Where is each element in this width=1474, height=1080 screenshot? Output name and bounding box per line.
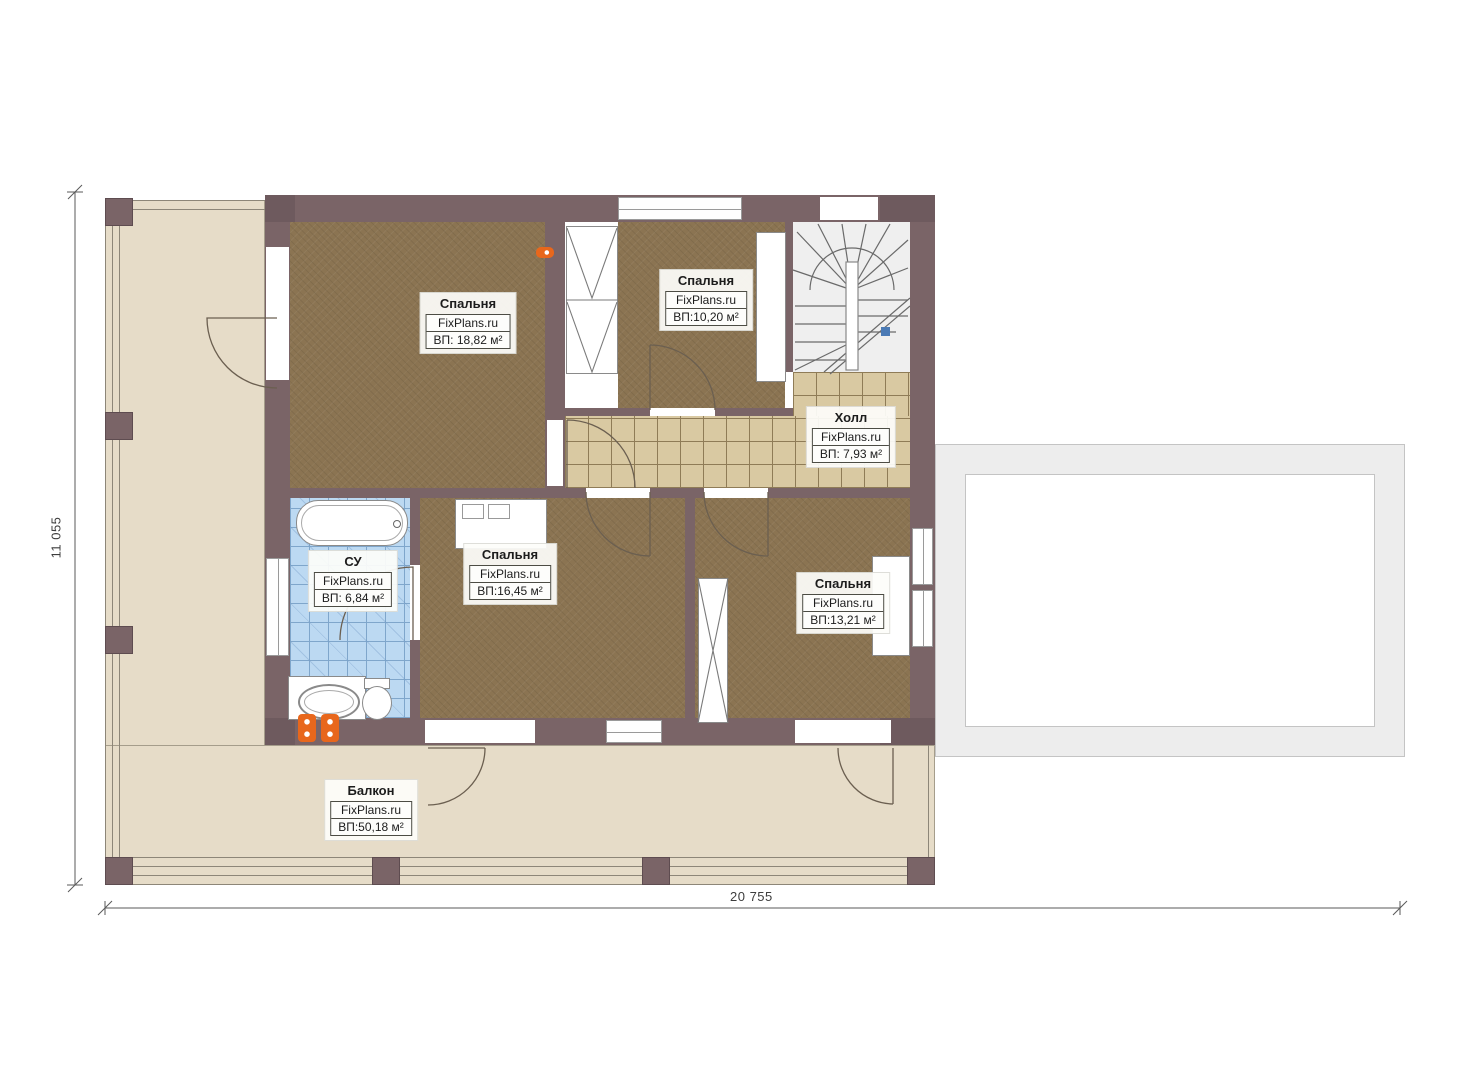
roof-outline-inner (965, 474, 1375, 727)
room-brand: FixPlans.ru (803, 595, 883, 612)
wall-bedrooms-divider (685, 498, 695, 718)
room-label-bedroom-top-mid: Спальня FixPlans.ru ВП:10,20 м² (659, 269, 753, 331)
bathtub-tap-icon (393, 520, 401, 528)
door-opening-bathroom (410, 565, 420, 640)
wardrobe-bedroom-right (698, 578, 728, 723)
wall-right (910, 195, 935, 745)
room-area: ВП:10,20 м² (666, 309, 746, 325)
door-opening-balcony-left (266, 247, 289, 380)
room-name: Холл (812, 410, 890, 425)
room-name: СУ (314, 554, 392, 569)
toilet-bowl-icon (362, 686, 392, 720)
room-label-hall: Холл FixPlans.ru ВП: 7,93 м² (806, 406, 896, 468)
balcony-railing-left (105, 200, 120, 885)
balcony-pillar (105, 857, 133, 885)
room-name: Спальня (426, 296, 511, 311)
radiator-icon (321, 714, 339, 742)
window-right-wall-1 (912, 528, 933, 585)
wall-corner (265, 195, 295, 222)
window-right-wall-2 (912, 590, 933, 647)
room-label-balcony: Балкон FixPlans.ru ВП:50,18 м² (324, 779, 418, 841)
wall-stairs-left (785, 222, 793, 372)
room-area: ВП:13,21 м² (803, 612, 883, 628)
room-area: ВП:16,45 м² (470, 583, 550, 599)
room-area: ВП:50,18 м² (331, 819, 411, 835)
balcony-pillar (105, 412, 133, 440)
balcony-pillar (372, 857, 400, 885)
balcony-pillar (105, 198, 133, 226)
bathtub (296, 500, 408, 546)
room-brand: FixPlans.ru (470, 566, 550, 583)
room-brand: FixPlans.ru (813, 429, 889, 446)
window-left-wall (266, 558, 289, 656)
door-opening-bedroom-mid (586, 488, 650, 498)
room-brand: FixPlans.ru (331, 802, 411, 819)
bed-bedroom-mid (455, 499, 547, 549)
room-name: Спальня (665, 273, 747, 288)
room-brand: FixPlans.ru (427, 315, 510, 332)
balcony-pillar (105, 626, 133, 654)
radiator-icon (298, 714, 316, 742)
window-top-stairs (820, 197, 878, 220)
wall-socket-icon (536, 247, 554, 258)
balcony-pillar (907, 857, 935, 885)
floor-plan-canvas: Спальня FixPlans.ru ВП: 18,82 м² Спальня… (0, 0, 1474, 1080)
bathtub-inner (301, 505, 403, 541)
window-bottom-wall (606, 720, 662, 743)
door-opening-balcony-bottom-2 (795, 720, 891, 743)
wall-corner (880, 195, 935, 222)
room-label-bedroom-mid: Спальня FixPlans.ru ВП:16,45 м² (463, 543, 557, 605)
room-name: Балкон (330, 783, 412, 798)
room-area: ВП: 18,82 м² (427, 332, 510, 348)
balcony-pillar (642, 857, 670, 885)
floor-stairs (793, 222, 910, 372)
room-label-bedroom-top-left: Спальня FixPlans.ru ВП: 18,82 м² (420, 292, 517, 354)
wardrobe-bedroom2 (756, 232, 786, 382)
roof-outline (935, 444, 1405, 757)
room-name: Спальня (802, 576, 884, 591)
door-opening-bedroom1 (547, 420, 563, 486)
dimension-height: 11 055 (48, 517, 63, 559)
door-opening-bedroom2 (650, 408, 715, 416)
window-top-wall (618, 197, 742, 220)
room-name: Спальня (469, 547, 551, 562)
room-brand: FixPlans.ru (315, 573, 391, 590)
door-opening-bedroom-right (704, 488, 768, 498)
pillow-icon (488, 504, 510, 519)
floor-bedroom-top-left (290, 222, 545, 488)
room-label-bathroom: СУ FixPlans.ru ВП: 6,84 м² (308, 550, 398, 612)
dimension-width: 20 755 (730, 889, 773, 904)
toilet (360, 678, 394, 720)
room-label-bedroom-right: Спальня FixPlans.ru ВП:13,21 м² (796, 572, 890, 634)
room-brand: FixPlans.ru (666, 292, 746, 309)
pillow-icon (462, 504, 484, 519)
wall-corner (265, 718, 295, 745)
balcony-railing-bottom (105, 855, 935, 885)
room-area: ВП: 6,84 м² (315, 590, 391, 606)
door-opening-balcony-bottom-1 (425, 720, 535, 743)
room-area: ВП: 7,93 м² (813, 446, 889, 462)
wardrobe-top (566, 226, 618, 374)
